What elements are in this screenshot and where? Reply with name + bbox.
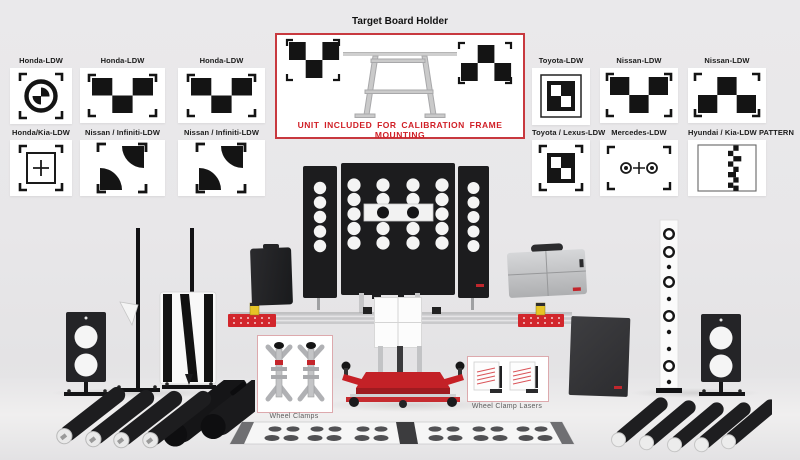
target-card-honda-kia-ldw: Honda/Kia-LDW [10,128,72,196]
target-card-label: Nissan / Infiniti-LDW [178,128,265,138]
wheel-clamps-box [257,335,333,413]
framed-checker-square-icon [532,68,590,125]
target-card-label: Toyota / Lexus-LDW [532,128,590,138]
target-card-label: Honda/Kia-LDW [10,128,72,138]
laser-unit-right [536,303,545,315]
target-card-label: Nissan-LDW [688,56,766,66]
target-board-holder-illustration [277,35,523,123]
zigzag-strip-pattern-icon [688,140,766,196]
wheel-clamp-lasers-caption: Wheel Clamp Lasers [462,403,552,410]
target-card-mercedes-ldw: Mercedes-LDW [600,128,678,196]
target-card-nissan-infiniti-2: Nissan / Infiniti-LDW [178,128,265,196]
ruler-end-block-left [228,314,276,327]
dots-cross-target-icon [600,140,678,196]
silver-target-case [507,249,587,298]
target-tube-cases-left [40,380,255,458]
cross-square-target-icon [10,140,72,196]
target-card-label: Nissan / Infiniti-LDW [80,128,165,138]
dot-ring-strip-target [656,218,682,396]
flat-dark-panel [569,316,631,397]
holder-right-target [457,41,515,85]
wheel-alignment-floor-mat [228,418,576,450]
checkerboard-target-icon [178,68,265,123]
checkerboard-inverted-target-icon [688,68,766,123]
quadrant-corner-target-icon [178,140,265,196]
checkerboard-target-icon [600,68,678,123]
target-card-label: Mercedes-LDW [600,128,678,138]
target-card-nissan-infiniti-1: Nissan / Infiniti-LDW [80,128,165,196]
target-card-label: Nissan-LDW [600,56,678,66]
target-card-label: Honda-LDW [80,56,165,66]
target-pole-with-flag [112,228,162,396]
holder-stand-frame [355,56,445,118]
wheel-clamp-lasers-illustration [468,357,548,401]
wheel-clamp-lasers-box [467,356,549,402]
two-circle-target-board-right [699,312,745,396]
rolling-base [338,356,468,408]
center-mount-panel [374,297,422,348]
striped-target-board [158,228,220,392]
target-card-label: Honda-LDW [10,56,72,66]
triangle-flag-target [120,302,138,325]
black-case-handle [263,244,279,249]
target-board-holder-box: UNIT INCLUDED FOR CALIBRATION FRAME MOUN… [275,33,525,139]
quadrant-corner-target-icon [80,140,165,196]
target-card-label: Toyota-LDW [532,56,590,66]
target-card-toyota-ldw: Toyota-LDW [532,56,590,125]
brand-logo-mark [573,287,581,291]
holder-left-target [285,38,343,82]
target-card-honda-ldw-3: Honda-LDW [178,56,265,123]
target-card-nissan-ldw-2: Nissan-LDW [688,56,766,123]
wheel-clamps-illustration [258,336,332,412]
target-card-label: Honda-LDW [178,56,265,66]
target-card-label: Hyundai / Kia-LDW PATTERN [688,128,766,138]
side-dot-panel-right [458,166,489,298]
framed-checker-square-icon [532,140,590,196]
target-card-nissan-ldw-1: Nissan-LDW [600,56,678,123]
target-card-honda-ldw-2: Honda-LDW [80,56,165,123]
brand-logo-mark [614,386,622,389]
side-dot-panel-left [303,166,337,298]
holder-note: UNIT INCLUDED FOR CALIBRATION FRAME MOUN… [277,120,523,140]
holder-title: Target Board Holder [300,16,500,27]
black-carry-case [250,247,293,305]
circle-quadrant-target-icon [10,68,72,124]
brand-logo-mark [476,284,484,287]
target-card-honda-ldw-1: Honda-LDW [10,56,72,124]
target-tube-cases-right [582,392,772,456]
main-dot-target-board [341,163,455,295]
target-card-toyota-lexus-ldw: Toyota / Lexus-LDW [532,128,590,196]
checkerboard-target-icon [80,68,165,123]
ruler-end-block-right [518,314,564,327]
target-card-hyundai-kia-pattern: Hyundai / Kia-LDW PATTERN [688,128,766,196]
adas-calibration-kit-scene: Honda-LDW Honda-LDW [0,0,800,460]
